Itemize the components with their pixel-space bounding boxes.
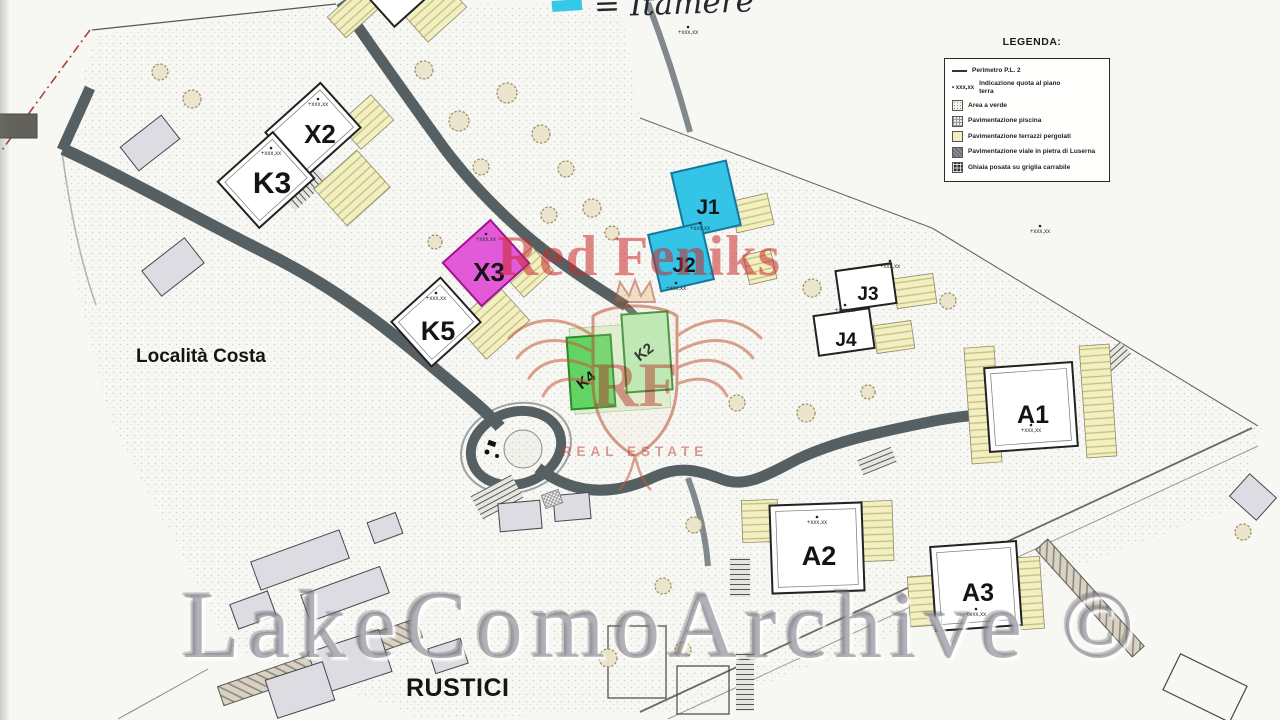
building-label-a2: A2 xyxy=(802,541,837,571)
svg-text:+xxx,xx: +xxx,xx xyxy=(1030,229,1050,235)
building-label-j2: J2 xyxy=(672,254,695,277)
building-label-x2: X2 xyxy=(304,119,336,149)
svg-text:+xxx,xx: +xxx,xx xyxy=(807,520,827,526)
svg-text:+xxx,xx: +xxx,xx xyxy=(690,226,710,232)
svg-text:+xxx,xx: +xxx,xx xyxy=(666,286,686,292)
building-label-a3: A3 xyxy=(962,579,994,607)
building-label-j1: J1 xyxy=(696,196,720,219)
building-label-a1: A1 xyxy=(1017,401,1049,429)
svg-text:+xxx,xx: +xxx,xx xyxy=(966,612,986,618)
svg-text:+xxx,xx: +xxx,xx xyxy=(476,237,496,243)
svg-text:+xxx,xx: +xxx,xx xyxy=(678,30,698,36)
building-label-k5: K5 xyxy=(421,316,456,346)
building-label-j4: J4 xyxy=(835,330,857,351)
building-label-j3: J3 xyxy=(857,284,878,305)
svg-text:+xxx,xx: +xxx,xx xyxy=(261,151,281,157)
svg-text:+xxx,xx: +xxx,xx xyxy=(835,308,855,314)
site-plan-scan: +xxx,xx +xxx,xx +xxx,xx +xxx,xx +xxx,xx … xyxy=(0,0,1280,720)
svg-text:+xxx,xx: +xxx,xx xyxy=(880,264,900,270)
building-label-k3: K3 xyxy=(253,167,291,200)
site-plan-drawing: +xxx,xx +xxx,xx +xxx,xx +xxx,xx +xxx,xx … xyxy=(0,0,1280,720)
building-label-x3: X3 xyxy=(473,257,505,287)
scan-edge-shadow xyxy=(0,0,10,720)
svg-text:+xxx,xx: +xxx,xx xyxy=(308,102,328,108)
svg-text:+xxx,xx: +xxx,xx xyxy=(426,296,446,302)
